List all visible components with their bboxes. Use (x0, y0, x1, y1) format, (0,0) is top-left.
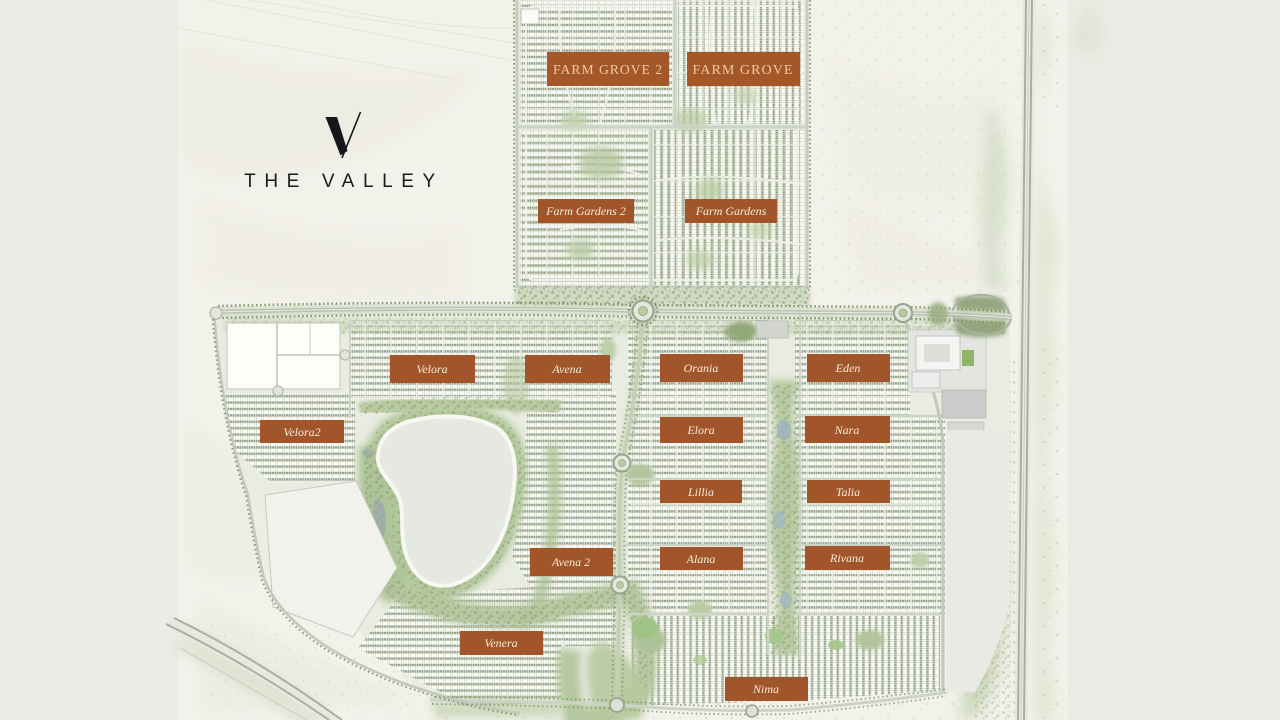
svg-text:FARM GROVE 2: FARM GROVE 2 (553, 63, 663, 78)
svg-text:Velora2: Velora2 (283, 425, 320, 439)
svg-text:FARM GROVE: FARM GROVE (693, 63, 794, 78)
svg-text:Rivana: Rivana (829, 551, 864, 565)
svg-text:Avena 2: Avena 2 (551, 555, 590, 569)
svg-text:Lillia: Lillia (687, 485, 714, 499)
svg-text:THE VALLEY: THE VALLEY (244, 171, 444, 192)
svg-text:Nara: Nara (834, 423, 860, 437)
svg-text:Nima: Nima (752, 682, 779, 696)
svg-text:Alana: Alana (686, 552, 716, 566)
svg-text:Velora: Velora (416, 362, 447, 376)
svg-text:Eden: Eden (835, 361, 861, 375)
svg-text:Farm Gardens: Farm Gardens (695, 204, 767, 218)
svg-text:Avena: Avena (551, 362, 581, 376)
svg-text:Elora: Elora (686, 423, 714, 437)
svg-text:Venera: Venera (484, 636, 517, 650)
svg-text:Orania: Orania (684, 361, 719, 375)
svg-text:Talia: Talia (836, 485, 860, 499)
svg-text:Farm Gardens 2: Farm Gardens 2 (545, 204, 626, 218)
